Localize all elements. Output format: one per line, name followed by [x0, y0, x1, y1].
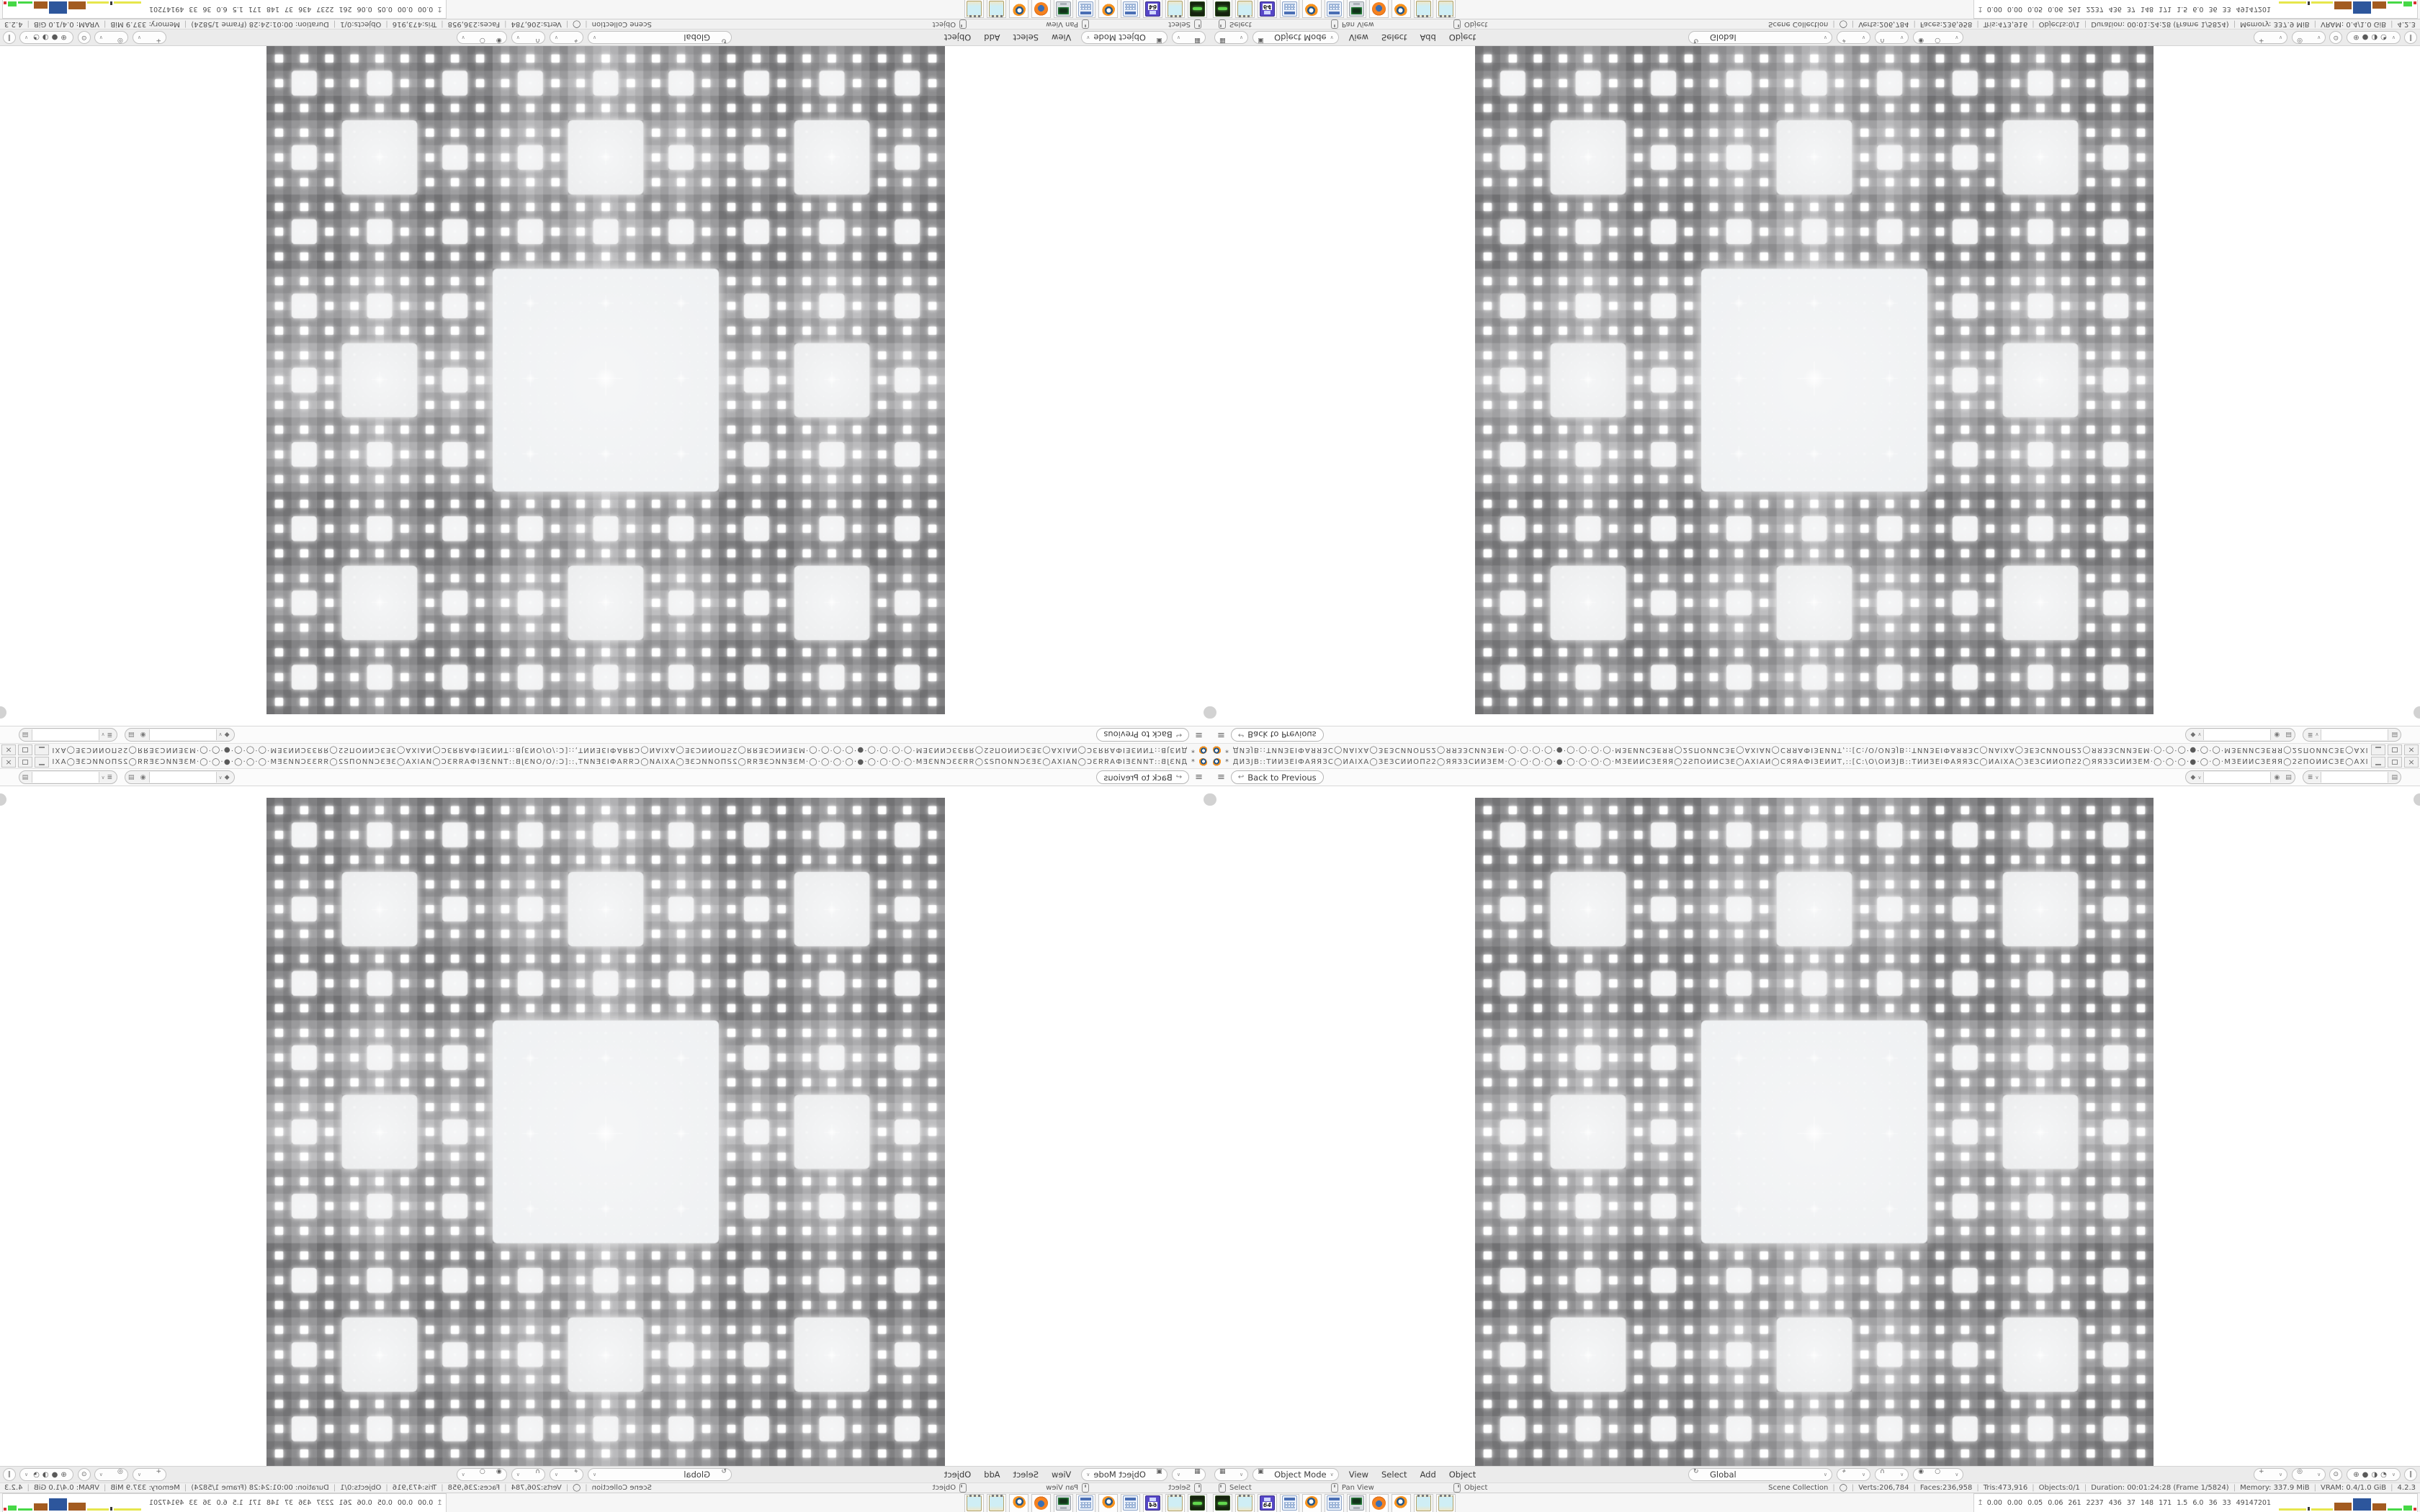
monitor-value: 0.06 [2048, 1499, 2063, 1507]
scene-stat-item: Scene Collection [1768, 20, 1828, 28]
app-icon-notepad-3[interactable] [964, 0, 984, 19]
app-icon-computer-terminal[interactable] [1054, 1494, 1073, 1512]
menu-add[interactable]: Add [984, 32, 1000, 42]
new-view-layer-icon[interactable]: ▤ [2388, 774, 2401, 781]
wireframe-shading-icon[interactable]: ⊕ [2353, 34, 2359, 42]
app-icon-notepad-3[interactable] [1436, 1494, 1456, 1512]
scene-stat-item: VRAM: 0.4/1.0 GiB [2310, 20, 2387, 28]
back-icon: ↩ [1176, 731, 1182, 739]
hint-select: Select [1219, 1483, 1252, 1493]
notepad-icon [1168, 1495, 1183, 1511]
scene-stat-item: Objects:0/1 [2027, 1484, 2080, 1492]
app-icon-firefox[interactable] [1031, 0, 1051, 19]
monitor-value: 33 [189, 5, 197, 13]
status-bar: Select Pan View Object Scene Collection◯… [0, 1482, 1210, 1493]
xray-toggle[interactable]: ⊙ [78, 31, 91, 44]
menus-collapsed-icon[interactable]: ≡ [1217, 730, 1225, 739]
overlays-dropdown[interactable]: ◎ ∨ [2292, 31, 2326, 44]
app-icon-firefox[interactable] [1369, 0, 1389, 19]
app-icon-floppy-emulator[interactable]: 64 [1143, 0, 1162, 19]
scene-stat-item: Faces:236,958 [448, 1484, 511, 1492]
window-controls: × [1, 744, 51, 755]
app-icon-notepad-2[interactable] [987, 1494, 1006, 1512]
left-mouse-icon [1219, 1483, 1226, 1493]
hint-select-label: Select [1229, 1484, 1252, 1492]
app-icon-removable-drive[interactable] [1213, 0, 1232, 19]
menu-select[interactable]: Select [1013, 1470, 1039, 1480]
rendered-shading-icon[interactable]: ◔ [33, 1471, 40, 1479]
app-icon-firefox[interactable] [1369, 1494, 1389, 1512]
scene-stat-item: 4.2.3 [4, 1484, 34, 1492]
chevron-down-icon: ∨ [516, 35, 520, 40]
menu-view[interactable]: View [1349, 32, 1368, 42]
menu-add[interactable]: Add [1420, 1470, 1435, 1480]
scene-stat-item: 4.2.3 [2386, 20, 2416, 28]
system-monitor-graph [6, 2, 141, 17]
pause-toggle[interactable]: ∥ [2404, 1468, 2417, 1481]
app-icon-computer-terminal[interactable] [1054, 0, 1073, 19]
magnet-icon: ∩ [526, 1468, 540, 1482]
calculator-icon [1282, 1, 1297, 17]
back-to-previous-button[interactable]: ↩ Back to Previous [1096, 728, 1189, 742]
chevron-down-icon: ∨ [1330, 1472, 1334, 1477]
pivot-point-dropdown[interactable]: ⌖ ∨ [1837, 1468, 1870, 1481]
3d-viewport[interactable] [1210, 46, 2420, 726]
firefox-icon [1372, 2, 1386, 16]
monitor-value: 1.5 [2177, 5, 2187, 13]
hint-object-label: Object [1464, 20, 1488, 28]
hint-object: Object [933, 19, 967, 29]
xray-toggle[interactable]: ⊙ [78, 1468, 91, 1481]
object-mode-icon: ▣ [1149, 1468, 1162, 1482]
pause-toggle[interactable]: ∥ [3, 1468, 16, 1481]
snap-dropdown[interactable]: ∩ ∨ [1875, 1468, 1909, 1481]
pivot-point-dropdown[interactable]: ⌖ ∨ [550, 1468, 583, 1481]
right-mouse-icon [959, 19, 967, 29]
editor-type-button[interactable]: ▦ ∨ [1172, 1468, 1206, 1481]
hint-pan-view-label: Pan View [1046, 1484, 1078, 1492]
app-icon-calculator-2[interactable] [1076, 1494, 1095, 1512]
material-shading-icon[interactable]: ◑ [2371, 34, 2378, 42]
app-icon-calculator-2[interactable] [1076, 0, 1095, 19]
pivot-point-dropdown[interactable]: ⌖ ∨ [550, 31, 583, 44]
left-mouse-icon [1194, 1483, 1201, 1493]
pin-icon[interactable]: ◉ [2271, 732, 2282, 739]
header-middle-group: ↻ Global ∨ ⌖ ∨ ∩ ∨ ◉ ○ ∨ [1684, 1468, 1963, 1481]
close-button[interactable]: × [1, 757, 16, 768]
transform-orientation-dropdown[interactable]: ↻ Global ∨ [588, 31, 732, 44]
scene-selector[interactable]: ◆ ∨ ◉ ▤ [2185, 770, 2295, 784]
app-icon-firefox[interactable] [1031, 1494, 1051, 1512]
restore-button[interactable] [2388, 757, 2402, 768]
minimize-button[interactable] [35, 757, 49, 768]
mode-dropdown[interactable]: ▣ Object Mode ∨ [1081, 1468, 1168, 1481]
monitor-bar [2334, 2, 2352, 10]
3d-viewport[interactable] [0, 46, 1210, 726]
view-layer-name-field[interactable] [2321, 729, 2388, 740]
topbar-right-group: ◆ ∨ ◉ ▤ ≣ ∨ ▤ [2178, 770, 2401, 784]
scene-stat-item: Objects:0/1 [340, 1484, 393, 1492]
wireframe-shading-icon[interactable]: ⊕ [60, 1471, 66, 1479]
restore-icon [22, 747, 28, 752]
app-icon-calculator-2[interactable] [1325, 0, 1344, 19]
monitor-bar [2414, 2, 2416, 5]
restore-button[interactable] [2388, 744, 2402, 755]
scene-stat-item: Memory: 337.9 MiB [110, 20, 191, 28]
os-taskbar: 64 ↥ 0.000.000.050.062612237436371481711… [0, 0, 1210, 19]
app-icon-blender-2[interactable] [1009, 1494, 1028, 1512]
proportional-off-icon: ○ [1935, 1468, 1948, 1482]
scene-name-field[interactable] [149, 729, 217, 740]
chevron-down-icon: ∨ [2197, 775, 2203, 780]
system-monitor-values: 0.000.000.050.062612237436371481711.56.0… [1987, 5, 2276, 13]
minimize-button[interactable] [2371, 757, 2385, 768]
restore-icon [2392, 760, 2398, 765]
computer-icon [1056, 1, 1071, 17]
back-to-previous-button[interactable]: ↩ Back to Previous [1231, 770, 1324, 784]
notepad-icon [989, 1495, 1004, 1511]
overlays-dropdown[interactable]: ◎ ∨ [94, 1468, 128, 1481]
scene-stat-item: Memory: 337.9 MiB [2229, 20, 2310, 28]
overlays-dropdown[interactable]: ◎ ∨ [94, 31, 128, 44]
menus-collapsed-icon[interactable]: ≡ [1217, 773, 1225, 782]
scene-selector[interactable]: ◆ ∨ ◉ ▤ [125, 728, 234, 742]
view-layer-name-field[interactable] [32, 772, 99, 783]
toolbar-toggle-tab[interactable] [1210, 793, 1216, 806]
app-icon-blender-2[interactable] [1391, 0, 1411, 19]
viewport-header: ▦ ∨ ▣ Object Mode ∨ View Select Add Obje… [1210, 30, 2420, 46]
app-icon-notepad-3[interactable] [1436, 0, 1456, 19]
menu-object[interactable]: Object [1449, 32, 1476, 42]
app-icon-floppy-emulator[interactable]: 64 [1143, 1494, 1162, 1512]
menu-add[interactable]: Add [984, 1470, 1000, 1480]
new-view-layer-icon[interactable]: ▤ [2388, 732, 2401, 739]
proportional-on-icon: ◉ [1918, 1468, 1932, 1482]
solid-shading-icon[interactable]: ● [2362, 34, 2369, 42]
scene-stats: Scene Collection◯Verts:206,784Faces:236,… [4, 20, 652, 28]
app-icon-removable-drive[interactable] [1188, 1494, 1207, 1512]
monitor-value: 436 [298, 5, 311, 13]
mode-dropdown[interactable]: ▣ Object Mode ∨ [1081, 31, 1168, 44]
app-icon-removable-drive[interactable] [1213, 1494, 1232, 1512]
scene-selector[interactable]: ◆ ∨ ◉ ▤ [2185, 728, 2295, 742]
new-view-layer-icon[interactable]: ▤ [19, 732, 32, 739]
pause-toggle[interactable]: ∥ [2404, 31, 2417, 44]
system-monitor-values: 0.000.000.050.062612237436371481711.56.0… [1987, 1499, 2276, 1507]
monitor-value: 0.05 [2027, 5, 2043, 13]
header-menus: View Select Add Object [1349, 32, 1489, 42]
app-icon-blender[interactable] [1302, 0, 1322, 19]
app-icon-computer-terminal[interactable] [1347, 0, 1366, 19]
pin-icon[interactable]: ◉ [2271, 774, 2282, 781]
gizmo-icon: + [148, 1468, 161, 1482]
monitor-value: 49147201 [2236, 1499, 2271, 1507]
pivot-point-dropdown[interactable]: ⌖ ∨ [1837, 31, 1870, 44]
hint-pan-view: Pan View [1331, 1483, 1374, 1493]
xray-toggle[interactable]: ⊙ [2329, 31, 2342, 44]
app-icon-blender-2[interactable] [1391, 1494, 1411, 1512]
back-to-previous-label: Back to Previous [1247, 773, 1316, 783]
menu-select[interactable]: Select [1381, 1470, 1407, 1480]
scene-stat-item: ◯ [573, 20, 592, 28]
solid-shading-icon[interactable]: ● [52, 34, 58, 42]
minimize-icon [2375, 764, 2381, 765]
editor-type-button[interactable]: ▦ ∨ [1214, 31, 1248, 44]
monitor-bar [2308, 2, 2310, 6]
os-taskbar: 64 ↥ 0.000.000.050.062612237436371481711… [1210, 0, 2420, 19]
chevron-down-icon: ∨ [99, 732, 105, 738]
monitor-value: 33 [2223, 5, 2231, 13]
hint-pan-view-label: Pan View [1046, 20, 1078, 28]
close-button[interactable]: × [2404, 757, 2419, 768]
mode-dropdown[interactable]: ▣ Object Mode ∨ [1252, 31, 1339, 44]
calculator-icon [1078, 1, 1093, 17]
view-layer-name-field[interactable] [2321, 772, 2388, 783]
toolbar-toggle-tab[interactable] [1204, 706, 1210, 719]
monitor-bar [68, 2, 86, 10]
hint-object: Object [1453, 19, 1488, 29]
monitor-bar [68, 1503, 86, 1511]
close-button[interactable]: × [1, 744, 16, 755]
chevron-down-icon: ∨ [217, 775, 223, 780]
restore-button[interactable] [18, 744, 32, 755]
wireframe-shading-icon[interactable]: ⊕ [2353, 1471, 2359, 1479]
gizmos-dropdown[interactable]: + ∨ [2254, 1468, 2287, 1481]
gizmo-icon: + [2259, 31, 2272, 45]
pause-toggle[interactable]: ∥ [3, 31, 16, 44]
app-icon-notepad[interactable] [1165, 0, 1185, 19]
left-mouse-icon [1219, 19, 1226, 29]
new-view-layer-icon[interactable]: ▤ [19, 774, 32, 781]
scene-stat-item: Objects:0/1 [340, 20, 393, 28]
scene-selector[interactable]: ◆ ∨ ◉ ▤ [125, 770, 234, 784]
monitor-bar [18, 2, 32, 4]
monitor-value: 37 [2127, 1499, 2136, 1507]
editor-type-button[interactable]: ▦ ∨ [1214, 1468, 1248, 1481]
app-icon-notepad[interactable] [1235, 1494, 1255, 1512]
app-icon-notepad[interactable] [1165, 1494, 1185, 1512]
menu-object[interactable]: Object [944, 32, 971, 42]
gizmos-dropdown[interactable]: + ∨ [133, 1468, 166, 1481]
notepad-icon [989, 1, 1004, 17]
header-right-group: + ∨ ◎ ∨ ⊙ ⊕ ● ◑ ◔ ∨ ∥ [2249, 31, 2417, 44]
menu-object[interactable]: Object [1449, 1470, 1476, 1480]
scene-stat-item: Scene Collection [1768, 1484, 1828, 1492]
menu-view[interactable]: View [1052, 1470, 1071, 1480]
menus-collapsed-icon[interactable]: ≡ [1195, 730, 1203, 739]
xray-toggle[interactable]: ⊙ [2329, 1468, 2342, 1481]
editor-type-icon: ▦ [1187, 1468, 1201, 1482]
menu-object[interactable]: Object [944, 1470, 971, 1480]
scene-stat-item: ◯ [1828, 1484, 1847, 1492]
sidebar-toggle-tab[interactable] [2414, 793, 2420, 806]
app-icon-calculator-2[interactable] [1325, 1494, 1344, 1512]
menu-add[interactable]: Add [1420, 32, 1435, 42]
material-shading-icon[interactable]: ◑ [2371, 1471, 2378, 1479]
calculator-icon [1327, 1, 1342, 17]
app-icon-calculator[interactable] [1121, 1494, 1140, 1512]
mode-dropdown[interactable]: ▣ Object Mode ∨ [1252, 1468, 1339, 1481]
app-icon-calculator[interactable] [1280, 1494, 1299, 1512]
proportional-editing-dropdown[interactable]: ◉ ○ ∨ [1913, 1468, 1963, 1481]
wireframe-shading-icon[interactable]: ⊕ [60, 34, 66, 42]
mode-label: Object Mode [1093, 32, 1145, 42]
app-icon-notepad-3[interactable] [964, 1494, 984, 1512]
app-icon-floppy-emulator[interactable]: 64 [1258, 0, 1277, 19]
app-icon-notepad-2[interactable] [1414, 1494, 1433, 1512]
proportional-editing-dropdown[interactable]: ◉ ○ ∨ [457, 1468, 507, 1481]
blender-window: * ДИЗЈВ::ТИИЗЕІФАЯЯЗС◯ИАІХА◯ЗЕЗСИИОПƧ2◯Я… [0, 0, 1210, 756]
new-scene-icon[interactable]: ▤ [2282, 732, 2295, 739]
proportional-editing-dropdown[interactable]: ◉ ○ ∨ [1913, 31, 1963, 44]
3d-viewport[interactable] [0, 786, 1210, 1466]
app-icon-notepad-2[interactable] [987, 0, 1006, 19]
chevron-down-icon: ∨ [99, 1472, 103, 1477]
gizmos-dropdown[interactable]: + ∨ [133, 31, 166, 44]
app-icon-floppy-emulator[interactable]: 64 [1258, 1494, 1277, 1512]
menu-view[interactable]: View [1349, 1470, 1368, 1480]
monitor-bar [2311, 1508, 2333, 1511]
new-scene-icon[interactable]: ▤ [125, 732, 138, 739]
window-controls: × [1, 757, 51, 768]
floppy-icon: 64 [1145, 1, 1160, 17]
chevron-down-icon: ∨ [1824, 35, 1827, 40]
app-icon-blender-2[interactable] [1009, 0, 1028, 19]
sidebar-toggle-tab[interactable] [0, 706, 6, 719]
view-layer-selector[interactable]: ≣ ∨ ▤ [2303, 728, 2401, 742]
monitor-bar [2403, 2, 2412, 7]
monitor-value: 0.06 [357, 1499, 372, 1507]
hint-pan-view-label: Pan View [1342, 1484, 1374, 1492]
app-icon-blender[interactable] [1098, 0, 1118, 19]
minimize-button[interactable] [2371, 744, 2385, 755]
calculator-icon [1327, 1495, 1342, 1511]
hint-object: Object [933, 1483, 967, 1493]
app-icon-notepad-2[interactable] [1414, 0, 1433, 19]
app-icon-calculator[interactable] [1280, 0, 1299, 19]
overlays-dropdown[interactable]: ◎ ∨ [2292, 1468, 2326, 1481]
3d-viewport[interactable] [1210, 786, 2420, 1466]
hint-pan-view-label: Pan View [1342, 20, 1374, 28]
editor-type-button[interactable]: ▦ ∨ [1172, 31, 1206, 44]
monitor-value: 261 [339, 5, 351, 13]
scene-name-field[interactable] [149, 772, 217, 783]
sidebar-toggle-tab[interactable] [0, 793, 6, 806]
app-icon-calculator[interactable] [1121, 0, 1140, 19]
window-titlebar[interactable]: * ДИЗЈВ::ТИИЗЕІФАЯЯЗС◯ИАІХА◯ЗЕЗСИИОПƧ2◯Я… [1210, 756, 2420, 769]
shading-mode-group: ⊕ ● ◑ ◔ ∨ [19, 1468, 73, 1481]
system-monitor: ↥ 0.000.000.050.062612237436371481711.56… [2, 1493, 447, 1512]
computer-icon [1056, 1495, 1071, 1511]
monitor-bar [2403, 1506, 2412, 1511]
chevron-down-icon: ∨ [1177, 35, 1180, 40]
menus-collapsed-icon[interactable]: ≡ [1195, 773, 1203, 782]
monitor-value: 6.0 [217, 1499, 228, 1507]
blender-icon [1305, 2, 1319, 16]
snap-dropdown[interactable]: ∩ ∨ [511, 31, 545, 44]
blender-logo-icon [1198, 758, 1207, 767]
rendered-shading-icon[interactable]: ◔ [2380, 34, 2387, 42]
back-to-previous-button[interactable]: ↩ Back to Previous [1096, 770, 1189, 784]
scene-stats: Scene Collection◯Verts:206,784Faces:236,… [4, 1484, 652, 1492]
gizmos-dropdown[interactable]: + ∨ [2254, 31, 2287, 44]
pivot-icon: ⌖ [1842, 31, 1855, 45]
fractal-render [266, 798, 945, 1466]
notepad-icon [1237, 1495, 1252, 1511]
overlays-icon: ◎ [2297, 31, 2311, 45]
view-layer-name-field[interactable] [32, 729, 99, 740]
snap-dropdown[interactable]: ∩ ∨ [1875, 31, 1909, 44]
chevron-down-icon: ∨ [462, 1472, 465, 1477]
proportional-editing-dropdown[interactable]: ◉ ○ ∨ [457, 31, 507, 44]
snap-dropdown[interactable]: ∩ ∨ [511, 1468, 545, 1481]
menu-select[interactable]: Select [1381, 32, 1407, 42]
pin-icon[interactable]: ◉ [138, 732, 149, 739]
toolbar-toggle-tab[interactable] [1210, 706, 1216, 719]
app-icon-blender[interactable] [1302, 1494, 1322, 1512]
back-to-previous-button[interactable]: ↩ Back to Previous [1231, 728, 1324, 742]
chevron-down-icon: ∨ [24, 35, 28, 40]
view-layer-icon: ≣ [2303, 732, 2316, 739]
view-layer-selector[interactable]: ≣ ∨ ▤ [2303, 770, 2401, 784]
solid-shading-icon[interactable]: ● [52, 1471, 58, 1479]
blender-window: * ДИЗЈВ::ТИИЗЕІФАЯЯЗС◯ИАІХА◯ЗЕЗСИИОПƧ2◯Я… [1210, 756, 2420, 1512]
chevron-down-icon: ∨ [1862, 35, 1865, 40]
rendered-shading-icon[interactable]: ◔ [2380, 1471, 2387, 1479]
scene-icon: ◆ [223, 732, 234, 739]
minimize-button[interactable] [35, 744, 49, 755]
sidebar-toggle-tab[interactable] [2414, 706, 2420, 719]
view-layer-selector[interactable]: ≣ ∨ ▤ [19, 728, 117, 742]
monitor-bar [2279, 2, 2306, 4]
new-scene-icon[interactable]: ▤ [125, 774, 138, 781]
view-layer-selector[interactable]: ≣ ∨ ▤ [19, 770, 117, 784]
scene-stat-item: Duration: 00:01:24:28 (Frame 1/5824) [191, 1484, 340, 1492]
material-shading-icon[interactable]: ◑ [42, 34, 49, 42]
monitor-bar [2308, 1507, 2310, 1511]
restore-button[interactable] [18, 757, 32, 768]
material-shading-icon[interactable]: ◑ [42, 1471, 49, 1479]
close-button[interactable]: × [2404, 744, 2419, 755]
transform-orientation-dropdown[interactable]: ↻ Global ∨ [588, 1468, 732, 1481]
monitor-value: 1.5 [2177, 1499, 2187, 1507]
app-icon-blender[interactable] [1098, 1494, 1118, 1512]
transform-orientation-dropdown[interactable]: ↻ Global ∨ [1688, 1468, 1832, 1481]
scene-name-field[interactable] [2203, 729, 2271, 740]
app-icon-notepad[interactable] [1235, 0, 1255, 19]
menu-view[interactable]: View [1052, 32, 1071, 42]
scene-name-field[interactable] [2203, 772, 2271, 783]
menu-select[interactable]: Select [1013, 32, 1039, 42]
window-titlebar[interactable]: * ДИЗЈВ::ТИИЗЕІФАЯЯЗС◯ИАІХА◯ЗЕЗСИИОПƧ2◯Я… [0, 756, 1210, 769]
back-to-previous-label: Back to Previous [1103, 773, 1172, 783]
toolbar-toggle-tab[interactable] [1204, 793, 1210, 806]
window-titlebar[interactable]: * ДИЗЈВ::ТИИЗЕІФАЯЯЗС◯ИАІХА◯ЗЕЗСИИОПƧ2◯Я… [0, 743, 1210, 756]
app-icon-removable-drive[interactable] [1188, 0, 1207, 19]
monitor-value: 6.0 [2192, 1499, 2203, 1507]
shading-mode-group: ⊕ ● ◑ ◔ ∨ [2347, 31, 2401, 44]
blender-topbar: ≡ ↩ Back to Previous ◆ ∨ ◉ ▤ ≣ ∨ ▤ [0, 726, 1210, 743]
new-scene-icon[interactable]: ▤ [2282, 774, 2295, 781]
pin-icon[interactable]: ◉ [138, 774, 149, 781]
transform-orientation-dropdown[interactable]: ↻ Global ∨ [1688, 31, 1832, 44]
window-titlebar[interactable]: * ДИЗЈВ::ТИИЗЕІФАЯЯЗС◯ИАІХА◯ЗЕЗСИИОПƧ2◯Я… [1210, 743, 2420, 756]
app-icon-computer-terminal[interactable] [1347, 1494, 1366, 1512]
rendered-shading-icon[interactable]: ◔ [33, 34, 40, 42]
solid-shading-icon[interactable]: ● [2362, 1471, 2369, 1479]
shading-mode-group: ⊕ ● ◑ ◔ ∨ [19, 31, 73, 44]
notepad-icon [1168, 1, 1183, 17]
